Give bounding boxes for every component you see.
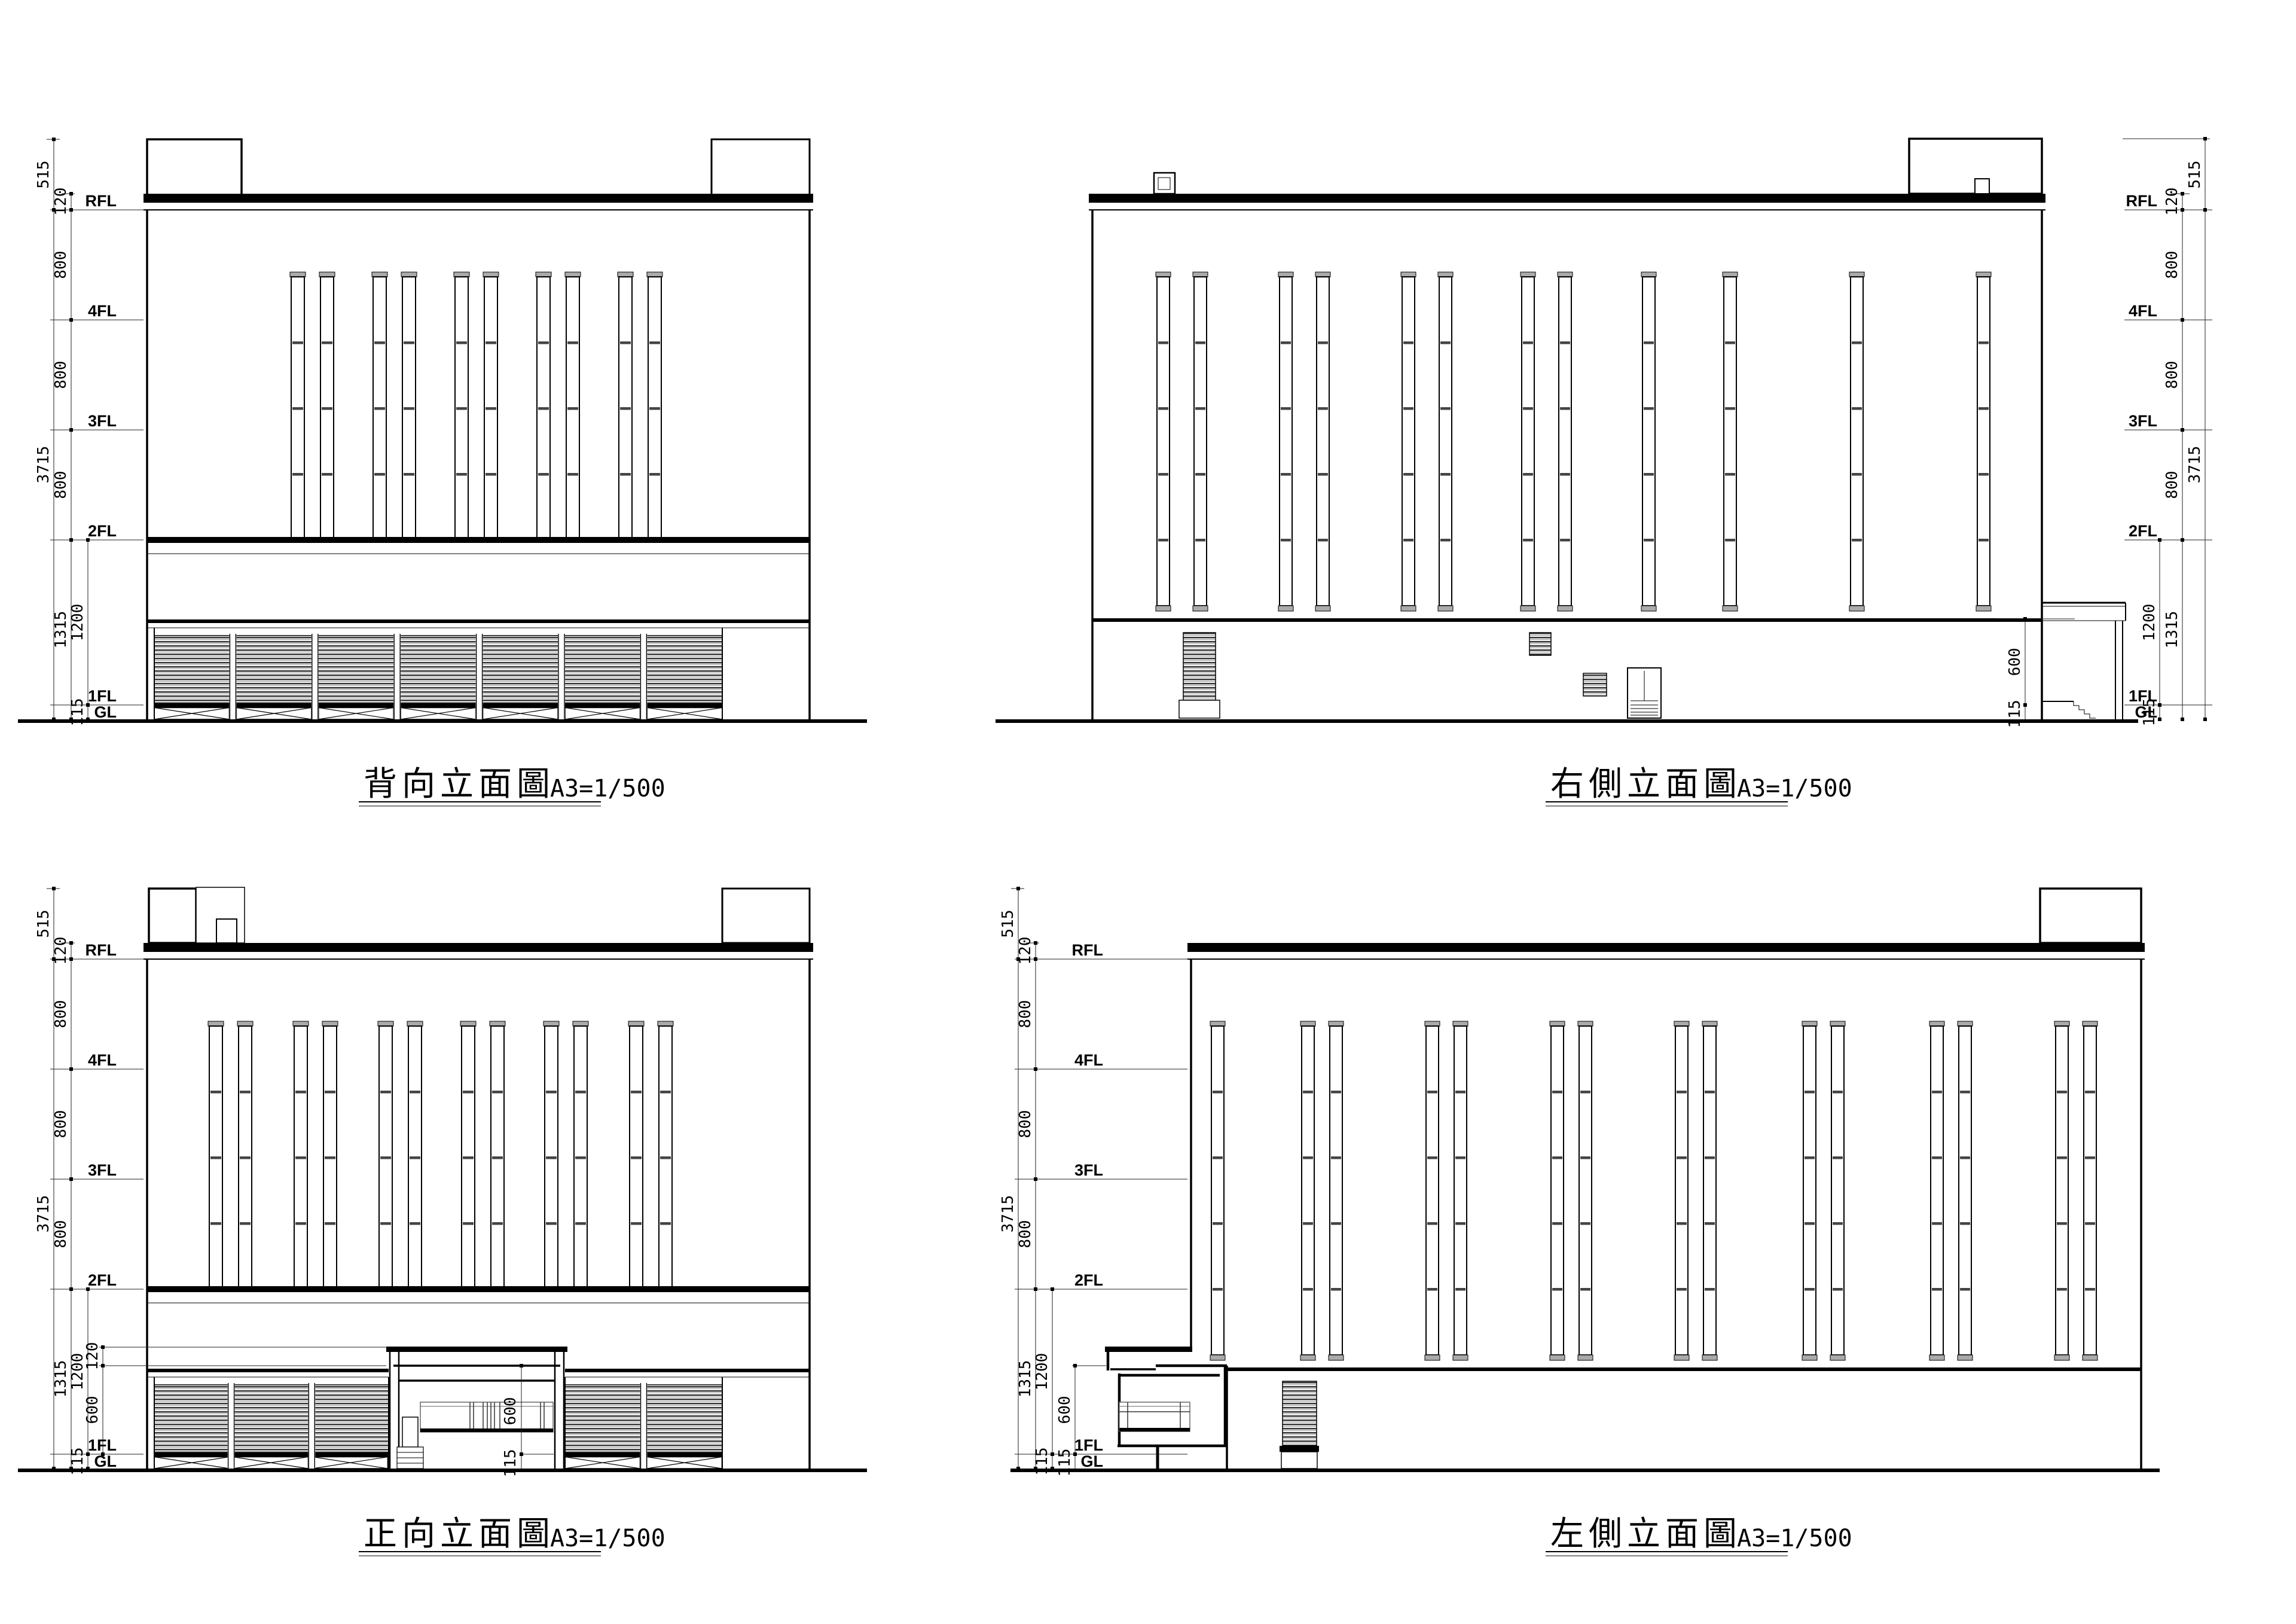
roof-band [143, 194, 813, 203]
door-steps [397, 1447, 423, 1469]
floor-label-2fl: 2FL [88, 1271, 117, 1289]
dim-storey: 800 [2163, 251, 2181, 279]
louver-screen [154, 628, 722, 719]
window-strips [208, 1021, 673, 1289]
floor-label-3fl: 3FL [88, 412, 117, 430]
floor-label-4fl: 4FL [2129, 302, 2157, 320]
floor-label-4fl: 4FL [88, 1051, 117, 1069]
roof-penthouse [2040, 889, 2141, 943]
canopy-top-bar [1105, 1347, 1192, 1352]
fascia-band [147, 619, 810, 623]
floor-label-gl: GL [1081, 1452, 1104, 1470]
dim-total: 3715 [2186, 446, 2204, 484]
dim-first-storey: 1200 [1033, 1353, 1051, 1391]
porch-window-band [1119, 1402, 1190, 1431]
canopy-top-bar [386, 1347, 567, 1352]
drawing-title: 左側立面圖 [1550, 1515, 1742, 1553]
roof-penthouse-left [147, 139, 242, 195]
dim-storey: 800 [52, 1220, 70, 1248]
dim-plinth: 115 [1033, 1448, 1051, 1476]
ground-line [1010, 1469, 2160, 1472]
dim-lower-zone: 1315 [2163, 611, 2181, 649]
dim-storey: 800 [1016, 1000, 1034, 1028]
floor-label-3fl: 3FL [1074, 1161, 1103, 1179]
dim-plinth: 115 [2006, 700, 2024, 728]
dim-storey: 800 [1016, 1220, 1034, 1248]
floor-label-1fl: 1FL [2129, 687, 2157, 705]
louver-vent-small-2 [1583, 673, 1607, 696]
louver-screen-right [565, 1377, 722, 1469]
roof-penthouse-right [722, 889, 810, 943]
dim-total: 3715 [35, 1195, 53, 1233]
louver-vent [1280, 1381, 1319, 1469]
floor-label-gl: GL [2135, 703, 2158, 721]
fascia-band [1227, 1367, 2141, 1371]
drawing-scale: A3=1/500 [1737, 1525, 1852, 1552]
drawing-scale: A3=1/500 [550, 1525, 665, 1552]
floor-label-gl: GL [94, 703, 117, 721]
elevations-canvas: 515 3715 120 800 800 800 1315 1200 115 R… [0, 0, 2296, 1624]
fascia-band [1092, 618, 2042, 622]
dim-roof-edge: 120 [52, 937, 70, 965]
dim-storey: 800 [52, 1000, 70, 1028]
window-strips [290, 272, 662, 540]
roof-stub [216, 919, 237, 943]
floor-label-rfl: RFL [1072, 941, 1103, 959]
drawing-title: 背向立面圖 [364, 765, 555, 804]
dim-plinth: 115 [69, 698, 87, 726]
dim-lower-zone: 1315 [52, 1360, 70, 1398]
vent-base [1179, 700, 1220, 718]
title-left-side: 左側立面圖 A3=1/500 [1546, 1515, 1852, 1556]
entrance-steps [2074, 701, 2096, 718]
drawing-title: 右側立面圖 [1550, 765, 1742, 804]
ground-line [18, 1469, 867, 1472]
dim-plinth: 115 [502, 1449, 520, 1478]
floor-label-1fl: 1FL [88, 1436, 117, 1454]
roof-penthouse-right [712, 139, 810, 195]
dim-parapet: 515 [35, 161, 53, 189]
window-strips [1156, 272, 1991, 611]
dim-plinth: 115 [1056, 1449, 1074, 1477]
louver-vent-small-1 [1529, 633, 1551, 655]
dim-storey: 800 [2163, 471, 2181, 499]
dim-first-storey: 1200 [69, 604, 87, 642]
floor-label-rfl: RFL [86, 941, 117, 959]
dimension-block-left-side: 515 3715 120 800 800 800 1315 1200 115 6… [999, 887, 1187, 1476]
title-right-side: 右側立面圖 A3=1/500 [1546, 765, 1852, 806]
storefront-glazing [420, 1402, 553, 1432]
dim-storey: 800 [2163, 361, 2181, 389]
dim-canopy-slab: 120 [84, 1342, 102, 1370]
front-elevation-drawing: 600 115 515 3715 120 800 800 800 1315 12… [18, 887, 867, 1556]
fascia-band-left [147, 1369, 389, 1372]
dim-roof-edge: 120 [1016, 937, 1034, 965]
floor-label-3fl: 3FL [88, 1161, 117, 1179]
louver-vent-tall [1183, 633, 1216, 700]
dim-canopy-clear: 600 [502, 1397, 520, 1425]
floor-label-3fl: 3FL [2129, 412, 2157, 430]
dimension-block-right-side: 515 3715 120 800 800 800 1315 1200 115 R… [2123, 137, 2212, 726]
drawing-scale: A3=1/500 [1737, 775, 1852, 802]
second-floor-band [147, 537, 810, 543]
drawing-title: 正向立面圖 [364, 1515, 555, 1553]
dim-storey: 800 [1016, 1110, 1034, 1138]
ground-line [996, 719, 2138, 723]
entrance-porch: 600 115 [386, 1347, 567, 1477]
dim-total: 3715 [35, 446, 53, 484]
double-door [1628, 668, 1661, 718]
left-side-elevation-drawing: 515 3715 120 800 800 800 1315 1200 115 6… [999, 887, 2160, 1556]
side-entrance-porch [1105, 1347, 1227, 1469]
floor-label-rfl: RFL [2126, 192, 2157, 210]
dim-parapet: 515 [999, 910, 1017, 938]
ground-floor-details [1179, 633, 1661, 718]
roof-stub-inner [1158, 178, 1170, 190]
roof-band [1187, 943, 2145, 952]
floor-label-2fl: 2FL [1074, 1271, 1103, 1289]
dim-lower-zone: 1315 [52, 611, 70, 649]
floor-label-4fl: 4FL [88, 302, 117, 320]
right-side-elevation-drawing: 600 115 515 3715 120 800 800 800 1315 12… [996, 137, 2212, 806]
dim-plinth: 115 [69, 1448, 87, 1476]
dim-roof-edge: 120 [52, 188, 70, 216]
floor-label-2fl: 2FL [88, 522, 117, 540]
floor-label-2fl: 2FL [2129, 522, 2157, 540]
dim-total: 3715 [999, 1195, 1017, 1233]
dim-canopy-clear: 600 [1056, 1396, 1074, 1424]
dim-canopy-clear: 600 [84, 1396, 102, 1424]
roof-band [1089, 194, 2045, 203]
dim-storey: 800 [52, 361, 70, 389]
dim-storey: 800 [52, 251, 70, 279]
dim-parapet: 515 [35, 910, 53, 938]
drawing-scale: A3=1/500 [550, 775, 665, 802]
title-rear: 背向立面圖 A3=1/500 [359, 765, 665, 806]
side-door [402, 1417, 418, 1447]
dim-parapet: 515 [2186, 161, 2204, 189]
ground-line [18, 719, 867, 723]
floor-label-gl: GL [94, 1452, 117, 1470]
dim-storey: 800 [52, 1110, 70, 1138]
louver-screen-left [154, 1377, 389, 1469]
dim-lower-zone: 1315 [1016, 1360, 1034, 1398]
dim-storey: 800 [52, 471, 70, 499]
floor-label-rfl: RFL [86, 192, 117, 210]
roof-vent-box [1975, 179, 1989, 194]
dim-first-storey: 1200 [2141, 604, 2158, 642]
floor-label-1fl: 1FL [88, 687, 117, 705]
drawing-sheet: 515 3715 120 800 800 800 1315 1200 115 R… [0, 0, 2296, 1624]
second-floor-band [147, 1286, 810, 1292]
dim-roof-edge: 120 [2163, 188, 2181, 216]
title-front: 正向立面圖 A3=1/500 [359, 1515, 665, 1556]
dim-canopy-clear: 600 [2006, 648, 2024, 676]
dimension-block-rear: 515 3715 120 800 800 800 1315 1200 115 R… [35, 138, 143, 726]
floor-label-1fl: 1FL [1074, 1436, 1103, 1454]
rear-elevation-drawing: 515 3715 120 800 800 800 1315 1200 115 R… [18, 138, 867, 806]
window-strips [1210, 1021, 2097, 1360]
roof-penthouse-left [149, 889, 196, 943]
floor-label-4fl: 4FL [1074, 1051, 1103, 1069]
fascia-band-right [565, 1369, 810, 1372]
roof-band [143, 943, 813, 952]
